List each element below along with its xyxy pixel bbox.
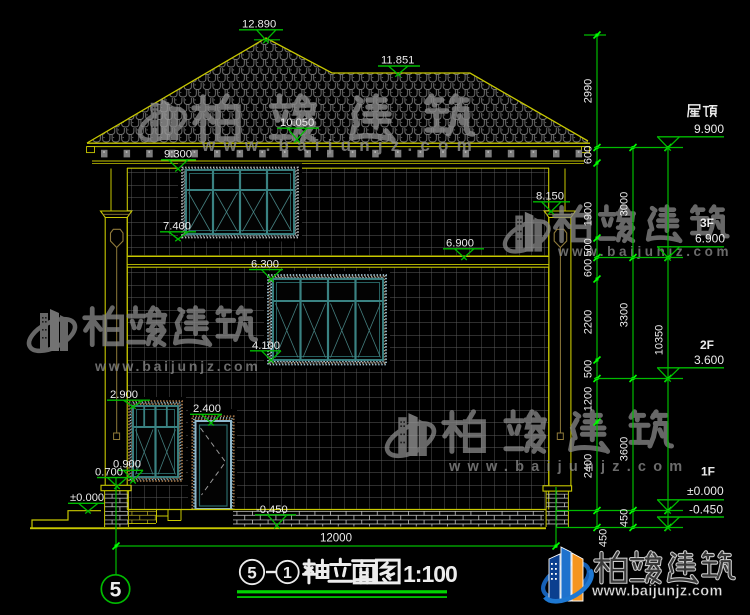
svg-text:2F: 2F	[700, 338, 714, 352]
svg-text:±0.000: ±0.000	[70, 492, 104, 504]
svg-text:www.baijunjz.com: www.baijunjz.com	[201, 136, 480, 155]
svg-text:1200: 1200	[583, 387, 595, 411]
svg-text:10350: 10350	[654, 325, 666, 356]
svg-text:www.baijunjz.com: www.baijunjz.com	[591, 584, 723, 600]
svg-text:6.300: 6.300	[251, 258, 279, 270]
svg-text:1:100: 1:100	[403, 561, 457, 587]
svg-text:-0.450: -0.450	[256, 504, 288, 516]
svg-text:12000: 12000	[320, 533, 352, 545]
svg-text:1: 1	[283, 565, 292, 582]
svg-text:6.900: 6.900	[695, 232, 725, 246]
svg-text:www.baijunjz.com: www.baijunjz.com	[94, 358, 261, 374]
svg-text:3600: 3600	[619, 437, 631, 461]
svg-text:9.900: 9.900	[694, 122, 724, 136]
svg-text:2.400: 2.400	[193, 403, 221, 415]
svg-text:-0.450: -0.450	[689, 503, 723, 517]
svg-text:www.baijunjz.com: www.baijunjz.com	[448, 459, 689, 475]
svg-text:11.851: 11.851	[381, 55, 414, 67]
svg-text:500: 500	[583, 238, 595, 256]
svg-text:8.150: 8.150	[536, 191, 564, 203]
svg-text:±0.000: ±0.000	[687, 484, 724, 498]
svg-text:3F: 3F	[700, 216, 714, 230]
svg-text:6.900: 6.900	[446, 238, 474, 250]
svg-text:2400: 2400	[583, 454, 595, 478]
svg-text:2990: 2990	[583, 79, 595, 103]
svg-text:600: 600	[583, 146, 595, 164]
svg-text:5: 5	[247, 564, 256, 583]
svg-text:450: 450	[619, 509, 631, 527]
svg-text:500: 500	[583, 360, 595, 378]
svg-text:1900: 1900	[583, 202, 595, 226]
svg-text:1F: 1F	[701, 465, 715, 479]
svg-text:600: 600	[583, 259, 595, 277]
svg-text:0.700: 0.700	[95, 467, 123, 479]
svg-text:2.900: 2.900	[110, 389, 138, 401]
svg-text:5: 5	[110, 579, 122, 602]
svg-text:7.400: 7.400	[163, 221, 191, 233]
svg-text:9.300: 9.300	[164, 149, 192, 161]
svg-text:450: 450	[598, 529, 610, 547]
svg-text:3300: 3300	[619, 303, 631, 327]
svg-text:3000: 3000	[619, 192, 631, 216]
svg-text:12.890: 12.890	[242, 19, 276, 31]
svg-text:10.050: 10.050	[280, 117, 314, 129]
svg-text:2200: 2200	[583, 310, 595, 334]
svg-text:3.600: 3.600	[694, 353, 724, 367]
svg-text:4.100: 4.100	[252, 340, 280, 352]
